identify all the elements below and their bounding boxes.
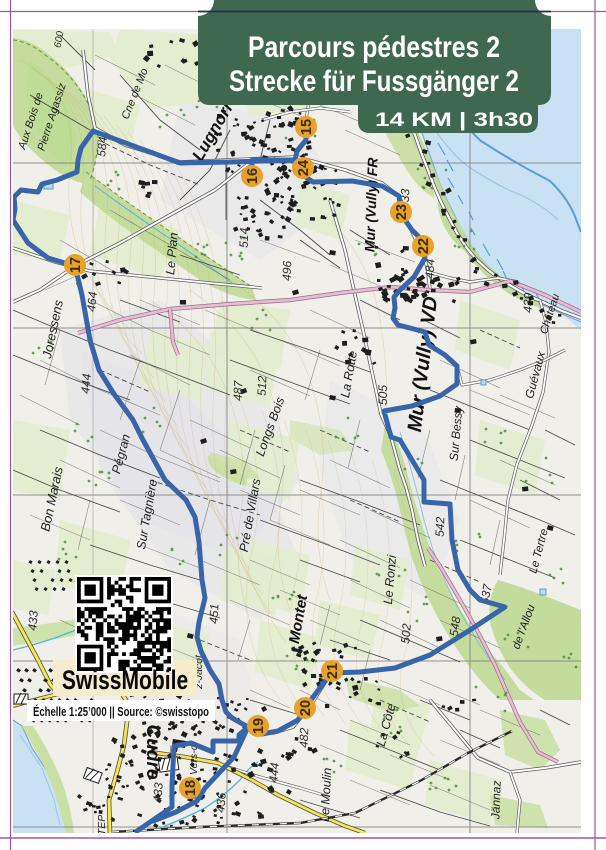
svg-text:Mur (Vully) FR: Mur (Vully) FR: [361, 156, 380, 252]
svg-text:SwissMobile: SwissMobile: [62, 666, 188, 696]
svg-text:20: 20: [298, 700, 314, 716]
svg-text:496: 496: [280, 260, 295, 281]
svg-text:TEP: TEP: [96, 815, 108, 835]
svg-text:433: 433: [25, 610, 41, 631]
svg-text:Jännaz: Jännaz: [488, 780, 503, 820]
svg-text:Parcours pédestres 2: Parcours pédestres 2: [248, 31, 500, 64]
svg-text:18: 18: [183, 780, 199, 796]
svg-text:514: 514: [237, 227, 252, 248]
svg-text:19: 19: [251, 718, 267, 734]
svg-text:21: 21: [325, 663, 341, 679]
svg-text:24: 24: [296, 160, 312, 176]
svg-text:451: 451: [206, 603, 221, 624]
svg-text:22: 22: [416, 238, 432, 254]
svg-text:23: 23: [394, 204, 410, 220]
svg-text:14 KM | 3h30: 14 KM | 3h30: [375, 110, 533, 131]
svg-text:436: 436: [213, 792, 229, 813]
svg-text:Strecke für Fussgänger 2: Strecke für Fussgänger 2: [229, 65, 519, 98]
svg-text:15: 15: [299, 119, 315, 135]
svg-text:Échelle 1:25’000 || Source: ©s: Échelle 1:25’000 || Source: ©swisstopo: [33, 704, 209, 719]
svg-text:17: 17: [68, 257, 84, 273]
svg-text:16: 16: [245, 168, 261, 184]
svg-text:Vers-c: Vers-c: [188, 744, 200, 775]
svg-text:482: 482: [297, 727, 312, 748]
svg-text:487: 487: [231, 379, 246, 401]
svg-text:439: 439: [521, 292, 536, 313]
svg-text:542: 542: [433, 516, 448, 537]
svg-text:512: 512: [255, 375, 270, 396]
svg-text:433: 433: [150, 782, 166, 803]
svg-text:444: 444: [266, 762, 282, 783]
svg-text:Le Moulin: Le Moulin: [318, 767, 335, 822]
svg-text:505: 505: [376, 385, 390, 405]
svg-text:444: 444: [78, 373, 94, 394]
svg-text:Cudre: Cudre: [142, 725, 163, 780]
svg-text:502: 502: [398, 623, 414, 644]
